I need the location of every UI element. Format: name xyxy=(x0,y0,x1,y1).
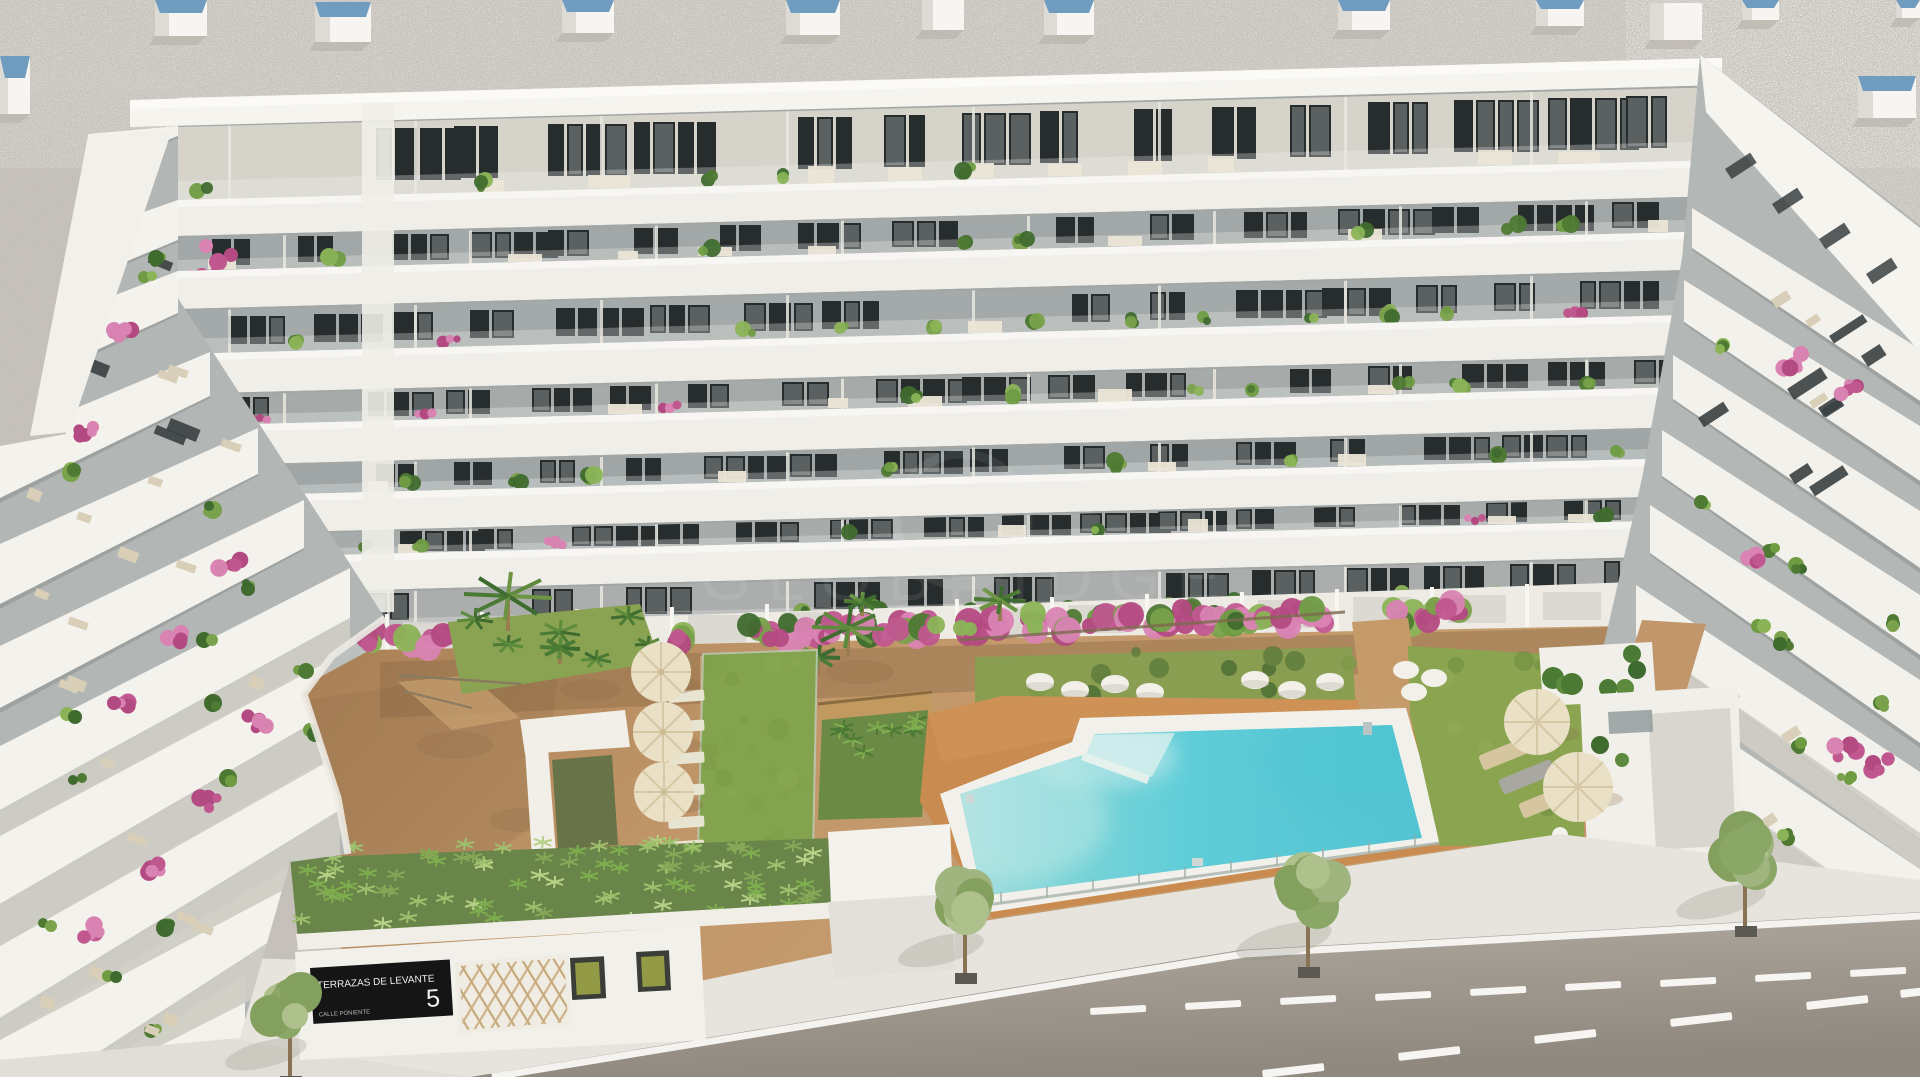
svg-text:5: 5 xyxy=(425,984,441,1013)
svg-text:GLOBRIDGE: GLOBRIDGE xyxy=(700,540,1236,614)
